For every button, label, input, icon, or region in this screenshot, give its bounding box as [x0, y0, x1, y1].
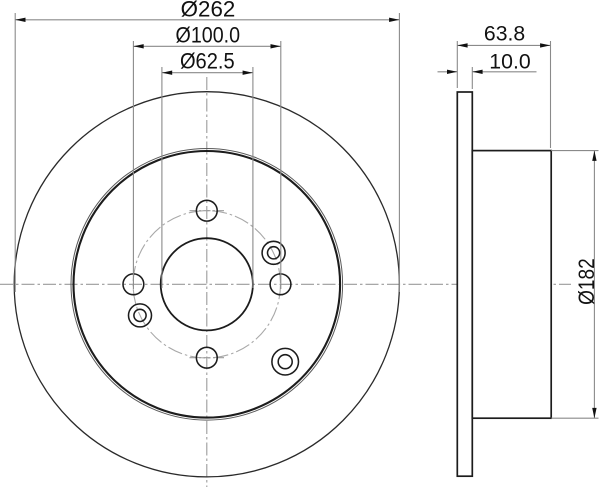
svg-text:Ø262: Ø262: [181, 0, 236, 22]
svg-text:63.8: 63.8: [484, 22, 525, 45]
svg-text:Ø100.0: Ø100.0: [176, 23, 241, 48]
svg-text:Ø182: Ø182: [574, 258, 599, 305]
svg-text:Ø62.5: Ø62.5: [180, 49, 235, 74]
svg-text:10.0: 10.0: [489, 50, 530, 73]
